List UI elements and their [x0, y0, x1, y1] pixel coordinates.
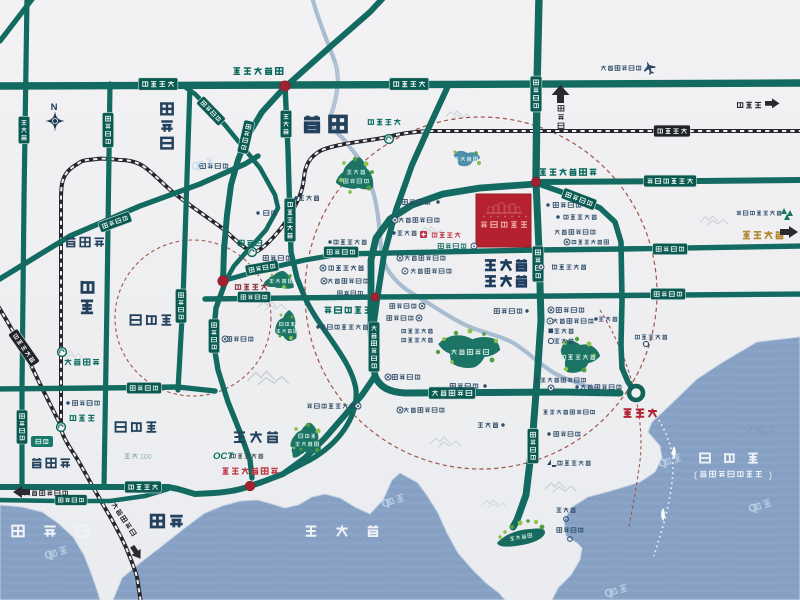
svg-text:): ) [769, 470, 772, 480]
svg-text:N: N [51, 102, 58, 113]
svg-text:100: 100 [140, 454, 152, 461]
svg-text:(: ( [694, 470, 697, 480]
